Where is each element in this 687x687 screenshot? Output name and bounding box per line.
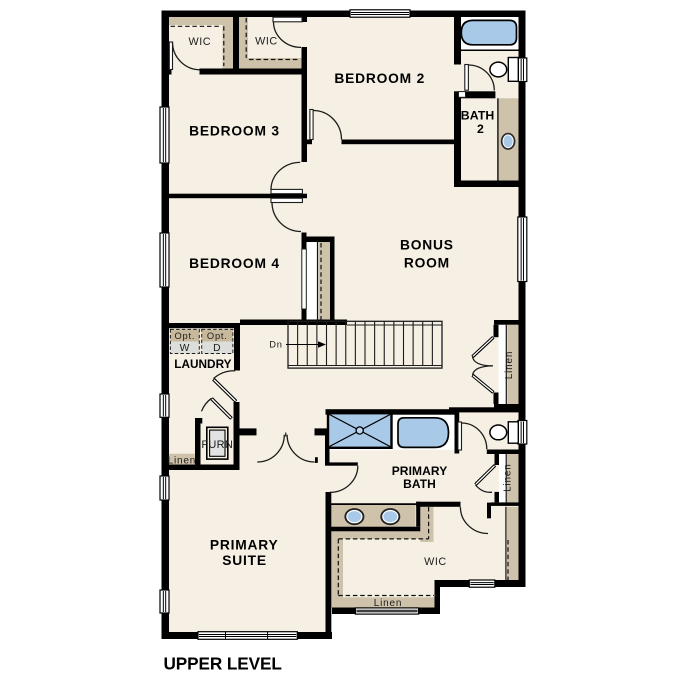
svg-text:D: D: [213, 343, 221, 354]
svg-text:Dn: Dn: [269, 339, 282, 349]
svg-text:Opt.: Opt.: [175, 331, 196, 341]
svg-text:Linen: Linen: [168, 455, 196, 466]
svg-text:SUITE: SUITE: [222, 553, 267, 568]
svg-text:WIC: WIC: [424, 556, 447, 568]
svg-text:PRIMARY: PRIMARY: [392, 464, 448, 478]
svg-text:Linen: Linen: [504, 351, 515, 379]
svg-text:BATH: BATH: [461, 109, 495, 123]
svg-text:BEDROOM 3: BEDROOM 3: [189, 123, 280, 138]
svg-text:UPPER LEVEL: UPPER LEVEL: [164, 654, 282, 674]
svg-text:Linen: Linen: [503, 463, 514, 491]
svg-text:2: 2: [477, 122, 484, 136]
svg-text:W: W: [180, 343, 191, 354]
svg-text:BATH: BATH: [403, 477, 436, 491]
svg-text:WIC: WIC: [255, 36, 278, 48]
svg-text:FURN: FURN: [201, 439, 233, 451]
svg-text:BEDROOM 2: BEDROOM 2: [334, 71, 425, 86]
svg-text:Opt.: Opt.: [207, 331, 228, 341]
svg-text:Linen: Linen: [374, 598, 402, 609]
svg-text:BEDROOM 4: BEDROOM 4: [189, 256, 280, 271]
svg-text:ROOM: ROOM: [404, 256, 450, 271]
svg-text:WIC: WIC: [189, 36, 212, 48]
svg-text:LAUNDRY: LAUNDRY: [174, 357, 231, 371]
svg-text:PRIMARY: PRIMARY: [210, 538, 279, 553]
svg-text:BONUS: BONUS: [400, 238, 454, 253]
